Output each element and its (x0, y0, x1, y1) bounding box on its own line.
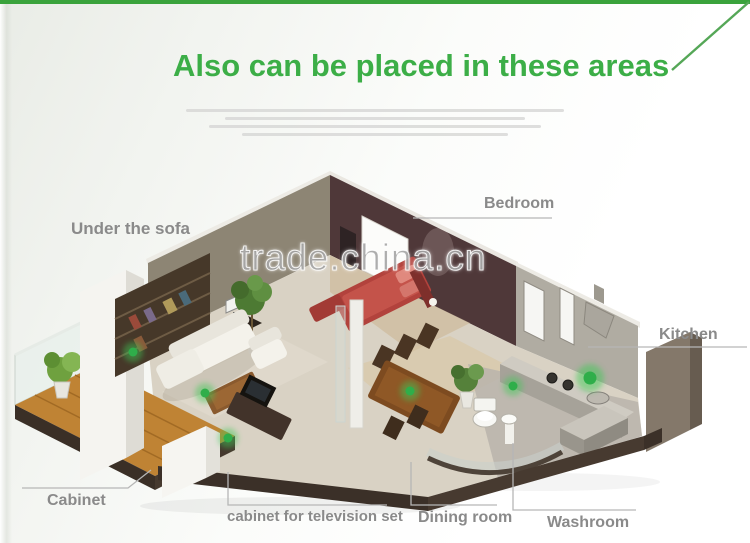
stove-burner (547, 373, 557, 383)
partitions (336, 300, 363, 428)
product-marker-dot (129, 348, 138, 357)
label-bedroom: Bedroom (484, 195, 554, 213)
bedside-lamp (429, 298, 437, 306)
stove-burner (563, 380, 573, 390)
watermark: trade.china.cn (240, 237, 486, 279)
product-marker-dot (224, 434, 233, 443)
promo-banner: Also can be placed in these areas (0, 0, 750, 543)
label-kitchen: Kitchen (659, 326, 718, 344)
label-washroom: Washroom (547, 514, 629, 532)
label-cabinet: Cabinet (47, 492, 106, 510)
label-tv-cabinet: cabinet for television set (227, 508, 403, 525)
product-marker-dot (584, 372, 597, 385)
white-pillar (350, 300, 363, 428)
glass-partition (336, 306, 345, 422)
kitchen-sink (587, 392, 609, 404)
label-under-the-sofa: Under the sofa (71, 219, 190, 239)
product-marker-dot (406, 387, 415, 396)
product-marker-dot (509, 382, 518, 391)
label-dining-room: Dining room (418, 509, 512, 527)
corner-diagonal-line (672, 2, 749, 70)
product-marker-dot (201, 389, 210, 398)
